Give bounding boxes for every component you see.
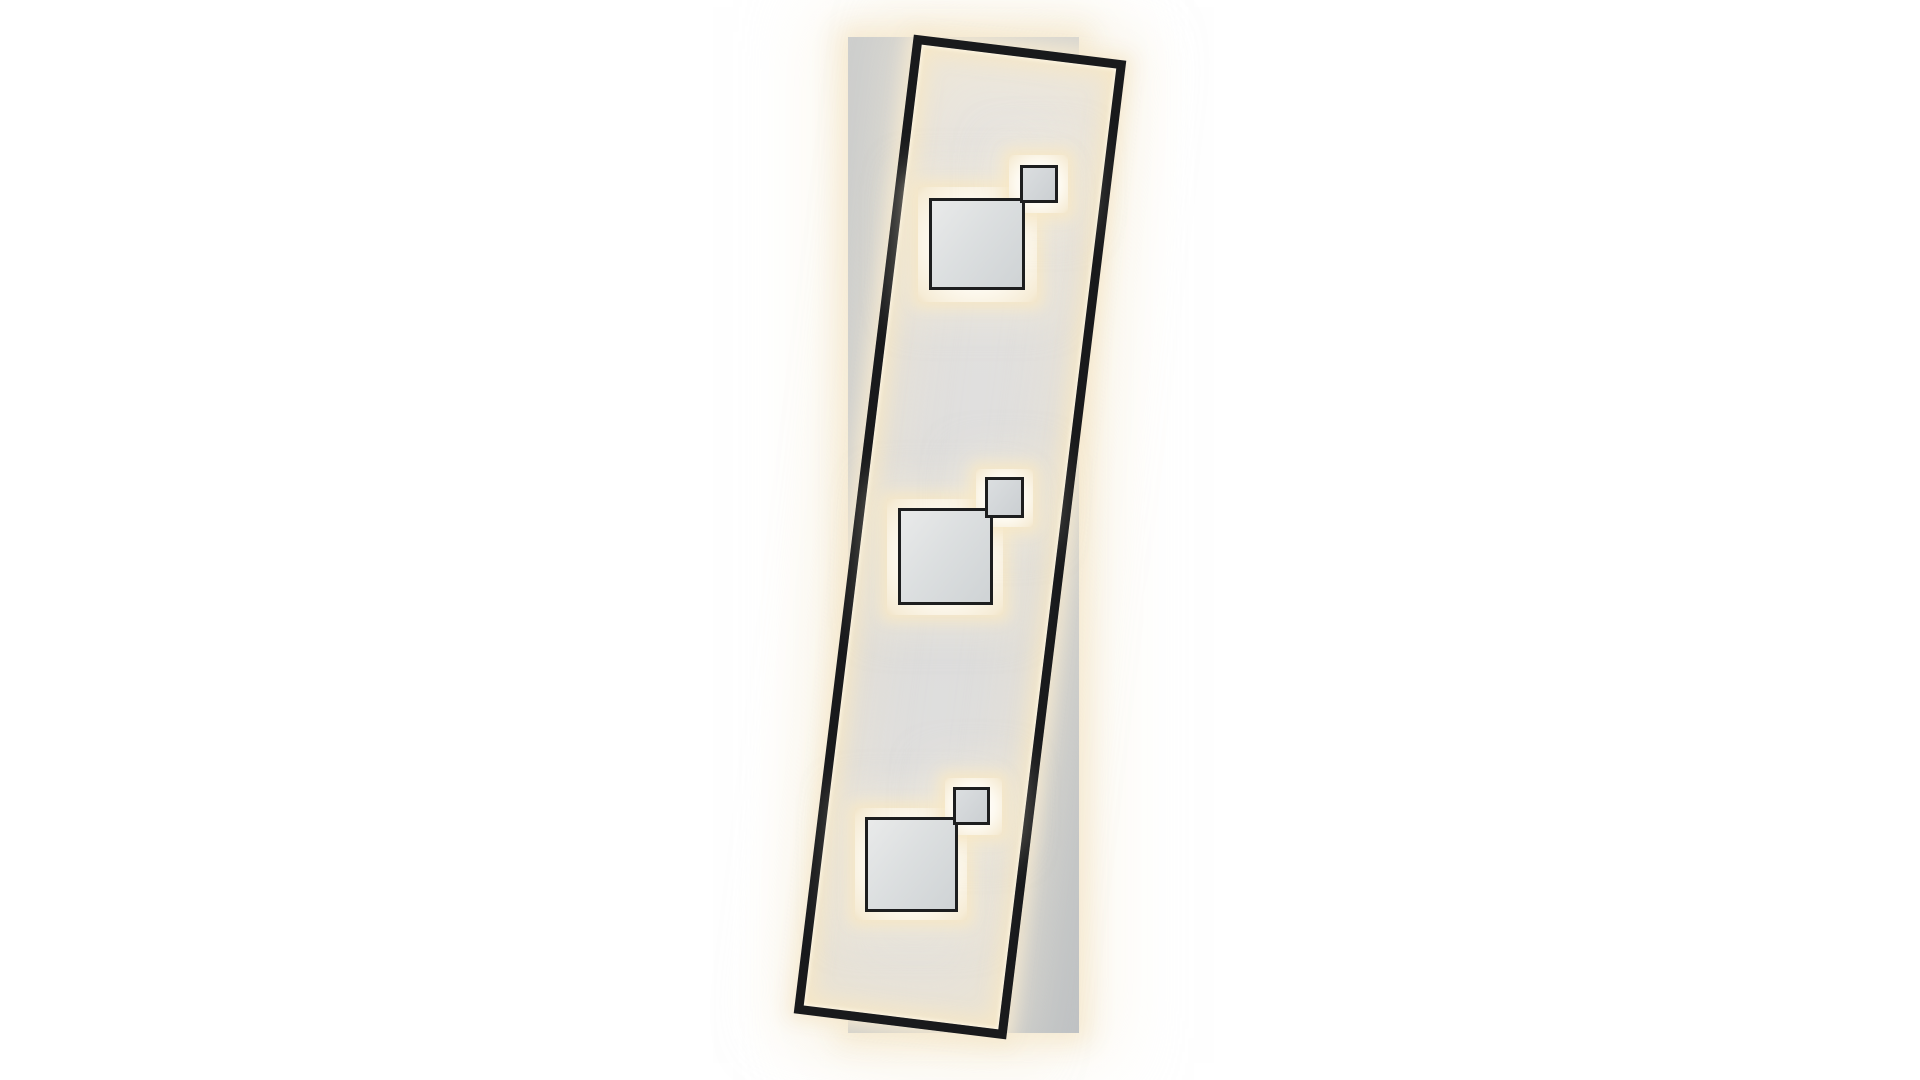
light-square-large-bottom [865, 817, 958, 912]
product-photo [0, 0, 1920, 1080]
light-square-small-bottom [953, 787, 990, 825]
light-square-large-top [929, 198, 1025, 290]
light-square-large-middle [898, 508, 993, 605]
light-square-small-middle [985, 477, 1024, 518]
light-square-small-top [1020, 165, 1058, 203]
